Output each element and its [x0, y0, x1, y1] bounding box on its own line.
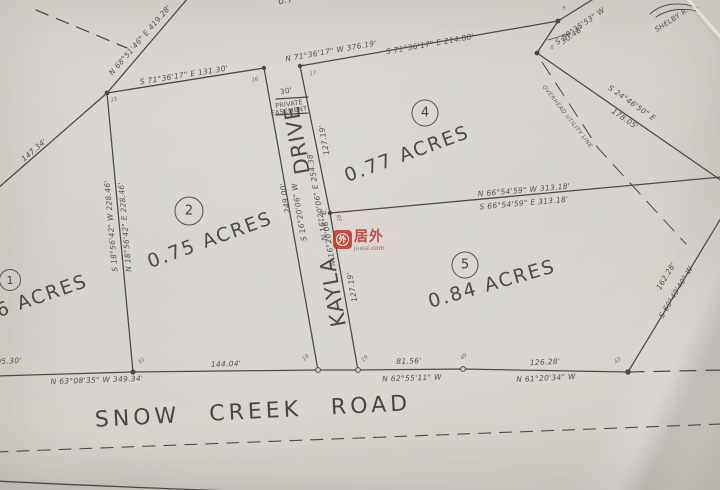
dist-road-seg1b: 144.04': [211, 359, 242, 369]
lot4-number: 4: [412, 100, 439, 127]
adjoiner-dashed-line: [36, 10, 127, 48]
lot1-number-text: 1: [7, 274, 14, 287]
lot5-number-text: 5: [461, 258, 469, 273]
watermark-brand-cn: 居外: [354, 230, 384, 245]
watermark-text-block: 居外 Juwai.com: [354, 230, 385, 252]
point-15: 15: [110, 96, 118, 103]
road-south-line: [0, 481, 318, 490]
lot2-number-text: 2: [185, 204, 193, 219]
juwai-logo-glyph: 外: [336, 233, 349, 246]
lot4-number-text: 4: [421, 106, 429, 121]
point-16: 16: [251, 76, 259, 83]
point-5: 5: [562, 6, 566, 12]
dist-road-seg2: 81.56': [396, 356, 422, 366]
juwai-watermark: 外 居外 Juwai.com: [333, 230, 385, 252]
lot4-lot5-divider-line: [330, 177, 720, 213]
point-6: 6: [550, 45, 554, 51]
point-17: 17: [309, 70, 317, 77]
lot1-number: 1: [0, 269, 21, 291]
lot2-number: 2: [175, 197, 204, 226]
point-18: 18: [336, 214, 343, 222]
paper-crease-shadow: [682, 0, 719, 42]
dist-road-left-partial: 05.30': [0, 356, 22, 366]
watermark-site-name: Juwai: [354, 245, 370, 252]
watermark-site-tld: .com: [370, 245, 385, 252]
lot5-number: 5: [452, 252, 479, 279]
watermark-site: Juwai.com: [354, 246, 385, 252]
plat-survey-map: N 68°51'46" E 419.28' 147.34' S 71°36'17…: [0, 0, 720, 490]
juwai-logo-icon: 外: [333, 230, 352, 249]
road-north-dashed-continuation: [628, 370, 720, 372]
dist-road-seg3: 126.28': [530, 357, 561, 368]
